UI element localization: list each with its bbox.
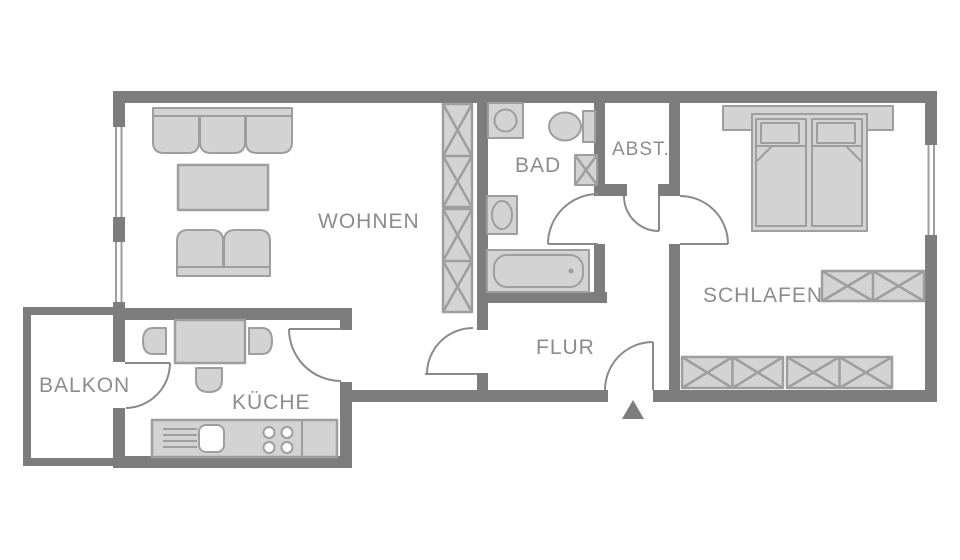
- wall-kitchen-right: [340, 382, 352, 468]
- door-kitchen: [289, 329, 341, 381]
- window-wohnen-upper: [116, 127, 122, 217]
- pillow-right: [817, 123, 855, 143]
- sofa2-cushion: [224, 230, 270, 268]
- wall-bad-bottom: [477, 292, 607, 303]
- sofa2-cushion: [177, 230, 223, 268]
- wardrobe-schlafen-right: [822, 271, 924, 301]
- wall-left-2: [113, 217, 125, 242]
- wall-abst-bottom-left: [594, 184, 627, 196]
- label-schlafen: SCHLAFEN: [703, 284, 823, 307]
- toilet-bowl: [549, 113, 581, 141]
- window-wohnen-lower: [116, 242, 122, 302]
- door-abst: [624, 196, 659, 231]
- parapet-left: [23, 307, 31, 466]
- wall-bad-abst-lower: [594, 244, 605, 303]
- wardrobe-wohnen: [443, 104, 472, 312]
- chair-right: [249, 328, 272, 354]
- kitchen-counter: [152, 420, 337, 457]
- floorplan: WOHNEN BAD ABST. SCHLAFEN FLUR BALKON KÜ…: [0, 0, 960, 560]
- sofa3-cushion: [246, 116, 292, 153]
- door-entrance: [605, 342, 653, 390]
- coffee-table: [178, 165, 268, 210]
- wall-bottom-right: [653, 390, 937, 402]
- wall-bottom-flur: [344, 390, 608, 402]
- label-abst: ABST.: [612, 139, 670, 160]
- stove-burner: [282, 427, 293, 438]
- room-schlafen-furniture: [682, 106, 924, 388]
- wardrobe-schlafen-bottom-1: [682, 357, 783, 388]
- wall-right-lower: [925, 235, 937, 401]
- dining-table: [175, 320, 245, 363]
- blanket-left: [756, 146, 806, 226]
- kitchen-sink: [199, 425, 224, 452]
- room-wohnen-furniture: [153, 104, 472, 312]
- door-bad: [548, 194, 598, 244]
- stove-burner: [264, 427, 275, 438]
- wardrobe-schlafen-bottom-2: [787, 357, 892, 388]
- stove-burner: [264, 442, 275, 453]
- stove-burner: [282, 442, 293, 453]
- entrance-arrow: [622, 400, 644, 419]
- bathtub-drain: [569, 269, 574, 274]
- wall-kitchen-top: [113, 308, 352, 320]
- label-bad: BAD: [515, 154, 561, 177]
- window-schlafen: [929, 145, 935, 235]
- chair-left: [143, 328, 166, 354]
- floorplan-svg: WOHNEN BAD ABST. SCHLAFEN FLUR BALKON KÜ…: [0, 0, 960, 560]
- wall-kitchen-right-stub: [340, 320, 352, 330]
- chair-bottom: [196, 368, 222, 392]
- toilet-tank: [583, 111, 595, 142]
- parapet-top: [23, 307, 113, 315]
- sofa3-cushion: [200, 116, 245, 153]
- sofa2-backrest: [177, 267, 270, 276]
- door-balcony: [125, 363, 170, 408]
- pillow-left: [761, 123, 799, 143]
- wall-flur-schlafen: [669, 244, 680, 402]
- blanket-right: [812, 146, 862, 226]
- label-balkon: BALKON: [39, 374, 130, 397]
- parapet-bottom: [23, 458, 113, 466]
- door-wohnen: [425, 328, 477, 374]
- wall-left-1: [113, 91, 125, 127]
- label-wohnen: WOHNEN: [318, 210, 420, 233]
- wall-abst-schlafen: [669, 103, 680, 196]
- room-kueche-furniture: [143, 320, 337, 457]
- wall-top: [113, 91, 937, 103]
- washing-machine: [488, 103, 523, 138]
- label-flur: FLUR: [536, 336, 595, 359]
- sofa3-cushion: [153, 116, 199, 153]
- wall-right-upper: [925, 91, 937, 145]
- door-schlafen: [680, 196, 728, 244]
- wall-wohnen-flur-stub: [477, 373, 488, 402]
- label-kueche: KÜCHE: [232, 391, 311, 414]
